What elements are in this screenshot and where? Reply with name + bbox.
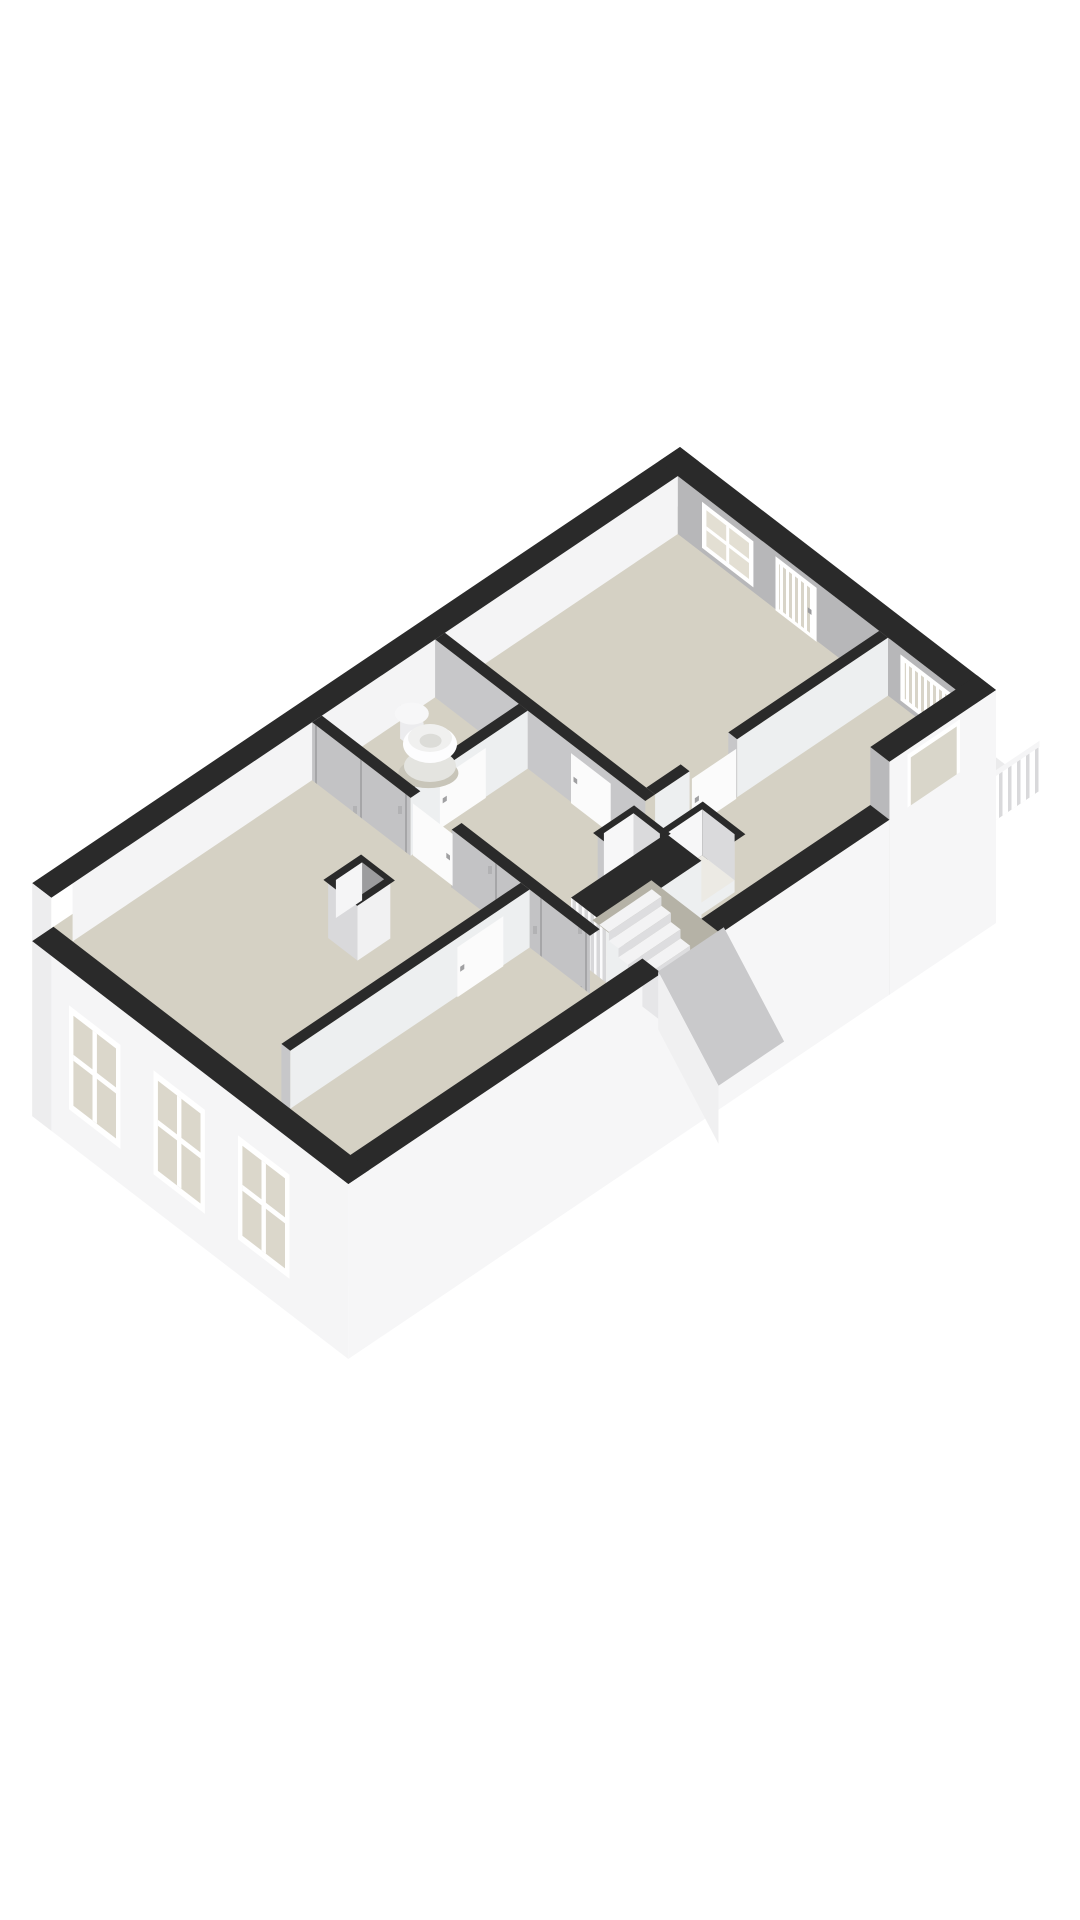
- far-facade-west-end-face: [32, 883, 51, 1131]
- bedroomD-wall-end-face: [281, 1044, 290, 1109]
- balcony-door-frame-left: [957, 719, 960, 774]
- toilet-seat-hole: [420, 734, 442, 748]
- toilet-tank-top: [395, 703, 429, 725]
- floorplan-3d-render: [0, 0, 1080, 1920]
- floorplan-canvas: [0, 0, 1080, 1920]
- balcony-door-frame-right: [908, 752, 911, 807]
